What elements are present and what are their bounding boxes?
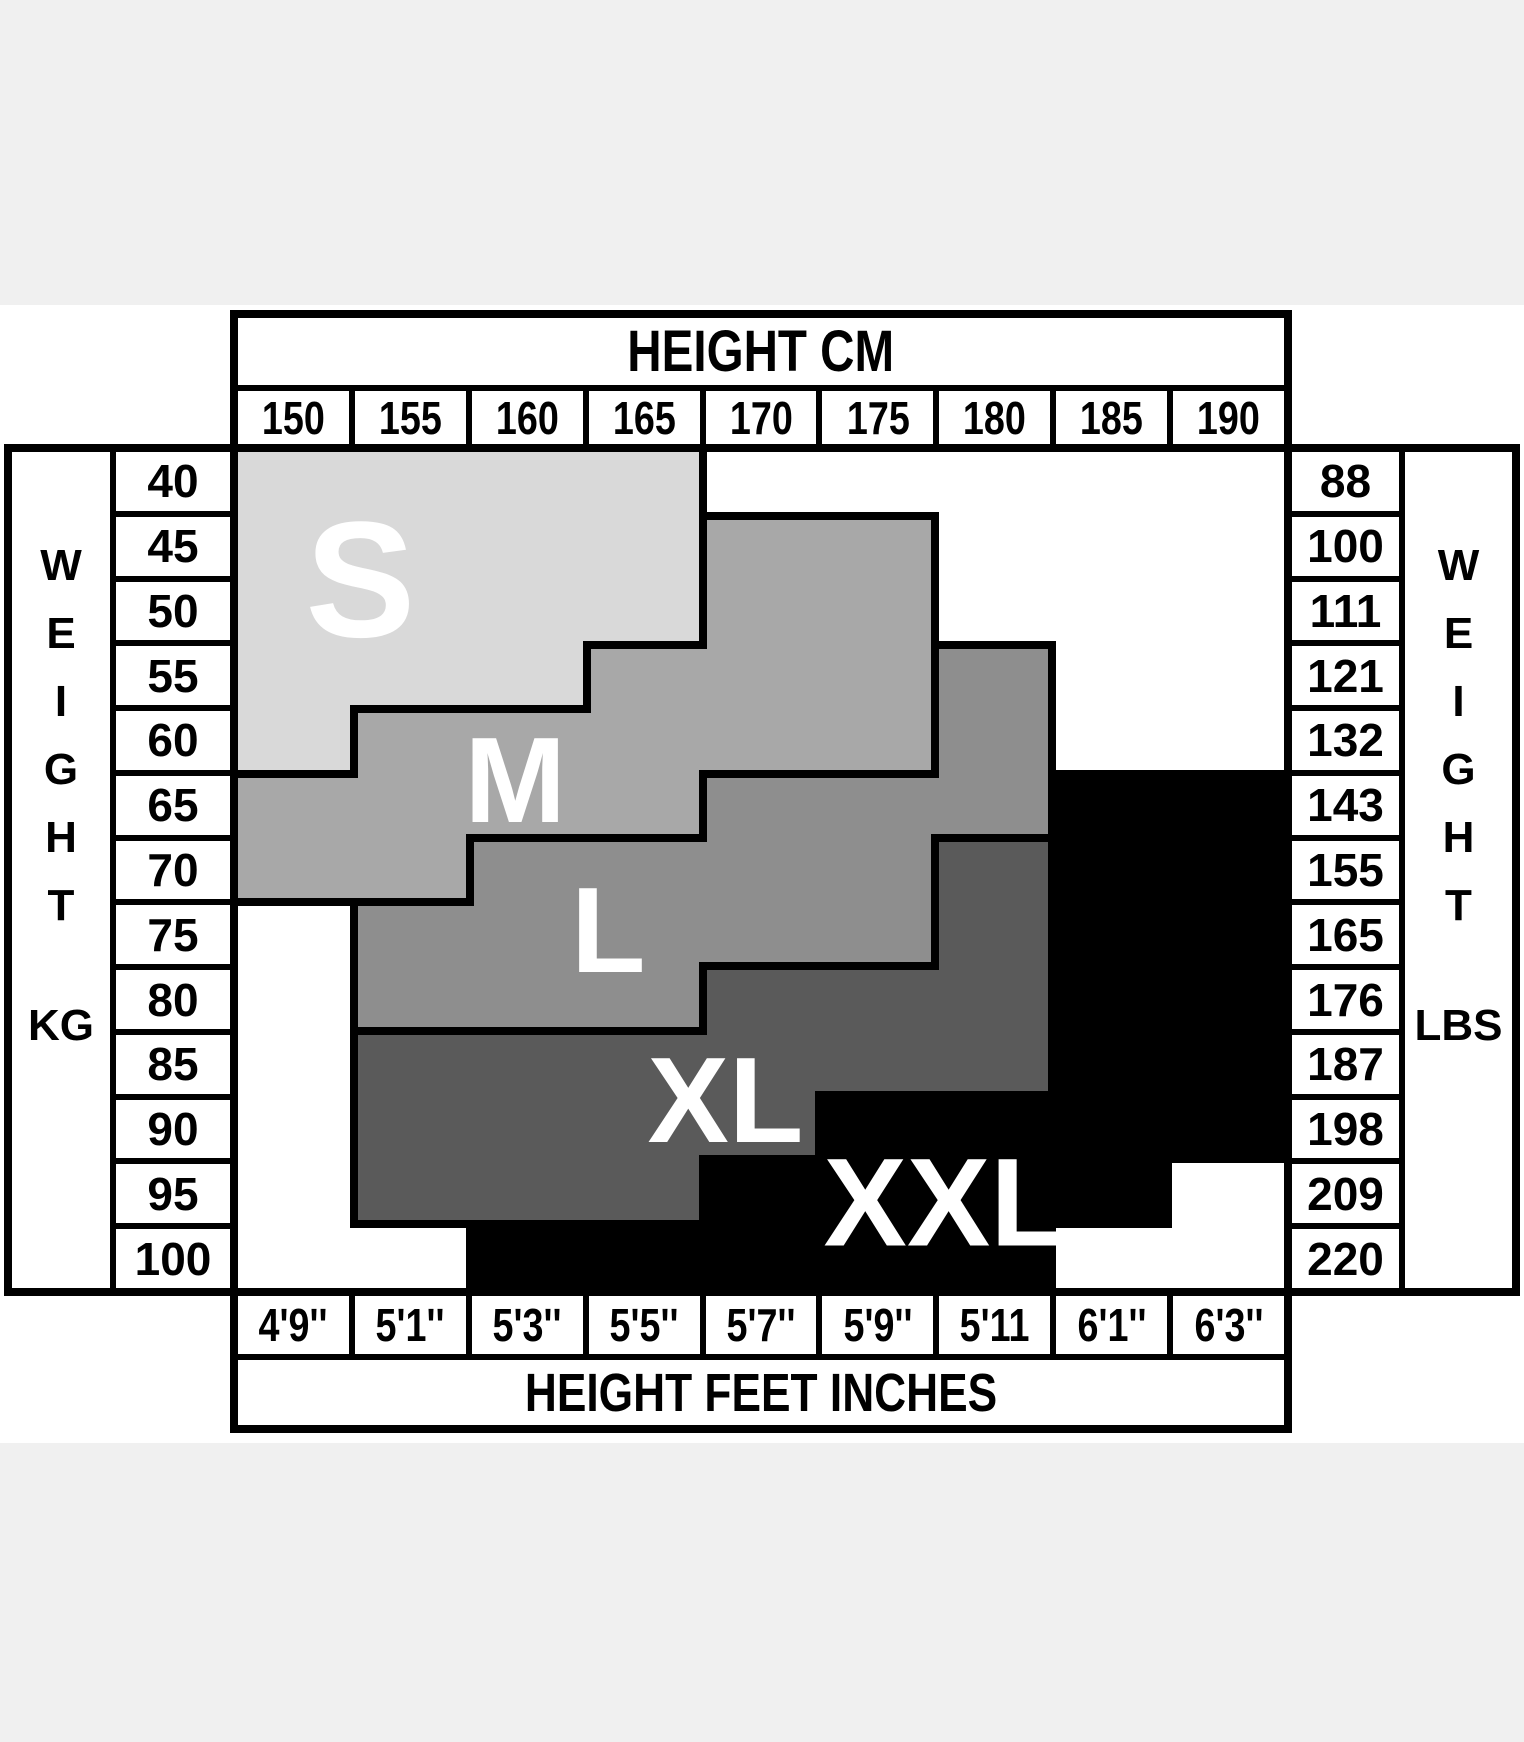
region-cell-M xyxy=(587,774,704,839)
height-ft-header: 4'9''5'1''5'3''5'5''5'7''5'9''5'116'1''6… xyxy=(230,1288,1292,1433)
region-cell-Z xyxy=(587,1224,704,1289)
region-border-v xyxy=(1164,1155,1172,1227)
region-cell-Z xyxy=(1168,966,1285,1031)
region-cell-S xyxy=(470,581,587,646)
region-border-h xyxy=(1164,770,1288,778)
region-border-h xyxy=(583,834,707,842)
weight-kg-tick: 45 xyxy=(116,511,230,576)
size-label-M: M xyxy=(464,719,566,841)
region-border-h xyxy=(234,770,358,778)
region-border-v xyxy=(931,577,939,649)
region-cell-X xyxy=(470,1031,587,1096)
region-border-v xyxy=(1048,770,1056,842)
region-cell-Z xyxy=(703,1224,820,1289)
region-border-v xyxy=(815,1091,823,1163)
height-ft-tick-text: 5'7'' xyxy=(727,1298,796,1352)
region-cell-L xyxy=(354,902,471,967)
height-ft-tick: 5'1'' xyxy=(349,1296,466,1354)
height-cm-title: HEIGHT CM xyxy=(238,318,1284,385)
weight-kg-panel: WEIGHTKG 404550556065707580859095100 xyxy=(4,444,238,1296)
region-border-v xyxy=(699,962,707,1034)
height-cm-tick: 165 xyxy=(583,391,700,445)
height-ft-tick: 5'7'' xyxy=(700,1296,817,1354)
region-border-v xyxy=(350,1091,358,1163)
height-ft-title-text: HEIGHT FEET INCHES xyxy=(525,1362,997,1424)
weight-lbs-tick: 132 xyxy=(1292,705,1399,770)
height-cm-tick-text: 175 xyxy=(846,391,909,445)
weight-lbs-tick: 143 xyxy=(1292,770,1399,835)
background-band-top xyxy=(0,0,1524,305)
region-border-v xyxy=(350,898,358,970)
size-grid: SMLXLXXL xyxy=(238,452,1284,1288)
weight-lbs-panel: 88100111121132143155165176187198209220 W… xyxy=(1284,444,1520,1296)
region-border-v xyxy=(931,512,939,584)
height-cm-tick: 180 xyxy=(933,391,1050,445)
region-border-v xyxy=(350,1155,358,1227)
region-cell-S xyxy=(238,709,355,774)
region-cell-Z xyxy=(1168,838,1285,903)
region-border-v xyxy=(350,962,358,1034)
height-ft-tick-text: 6'1'' xyxy=(1077,1298,1146,1352)
region-cell-Z xyxy=(703,1159,820,1224)
height-ft-tick: 6'3'' xyxy=(1167,1296,1284,1354)
region-cell-S xyxy=(470,452,587,517)
weight-letter: H xyxy=(1443,804,1475,872)
region-cell-M xyxy=(819,516,936,581)
region-border-h xyxy=(1164,1155,1288,1163)
region-border-v xyxy=(931,641,939,713)
region-cell-S xyxy=(587,581,704,646)
region-border-h xyxy=(466,1027,590,1035)
height-ft-tick: 5'9'' xyxy=(816,1296,933,1354)
region-border-v xyxy=(1048,1027,1056,1099)
region-border-h xyxy=(350,898,474,906)
height-cm-axis: 150155160165170175180185190 xyxy=(238,385,1284,445)
height-cm-tick: 150 xyxy=(238,391,349,445)
region-cell-M xyxy=(238,838,355,903)
region-cell-L xyxy=(703,902,820,967)
weight-letter: E xyxy=(46,600,75,668)
region-border-v xyxy=(1048,962,1056,1034)
weight-lbs-tick: 155 xyxy=(1292,835,1399,900)
size-label-XL: XL xyxy=(647,1039,803,1161)
weight-kg-axis: 404550556065707580859095100 xyxy=(116,452,230,1288)
region-border-v xyxy=(699,448,707,520)
weight-lbs-tick: 88 xyxy=(1292,452,1399,511)
region-border-h xyxy=(699,962,823,970)
height-cm-tick: 185 xyxy=(1050,391,1167,445)
weight-letter: T xyxy=(1445,872,1472,940)
weight-kg-tick: 60 xyxy=(116,705,230,770)
region-cell-Z xyxy=(1052,1159,1169,1224)
weight-lbs-tick: 100 xyxy=(1292,511,1399,576)
height-ft-tick-text: 6'3'' xyxy=(1194,1298,1263,1352)
weight-letter: W xyxy=(40,532,82,600)
height-cm-title-text: HEIGHT CM xyxy=(628,318,895,385)
weight-kg-tick: 85 xyxy=(116,1029,230,1094)
region-cell-M xyxy=(703,645,820,710)
height-ft-axis: 4'9''5'1''5'3''5'5''5'7''5'9''5'116'1''6… xyxy=(238,1296,1284,1354)
height-cm-tick-text: 150 xyxy=(262,391,325,445)
weight-letter: E xyxy=(1444,600,1473,668)
height-cm-tick-text: 190 xyxy=(1197,391,1260,445)
height-cm-tick: 160 xyxy=(466,391,583,445)
region-cell-X xyxy=(703,966,820,1031)
region-cell-L xyxy=(819,902,936,967)
region-border-h xyxy=(583,1220,707,1228)
height-ft-tick-text: 4'9'' xyxy=(259,1298,328,1352)
region-cell-L xyxy=(819,774,936,839)
region-border-v xyxy=(350,705,358,777)
region-border-v xyxy=(931,898,939,970)
weight-kg-tick: 65 xyxy=(116,770,230,835)
region-cell-Z xyxy=(470,1224,587,1289)
height-cm-tick-text: 170 xyxy=(730,391,793,445)
region-border-v xyxy=(699,577,707,649)
region-border-h xyxy=(815,512,939,520)
region-cell-Z xyxy=(1052,902,1169,967)
region-cell-M xyxy=(703,581,820,646)
region-cell-X xyxy=(935,1031,1052,1096)
region-border-h xyxy=(350,705,474,713)
region-cell-S xyxy=(470,645,587,710)
region-cell-Z xyxy=(1052,838,1169,903)
region-cell-M xyxy=(587,709,704,774)
height-cm-tick-text: 180 xyxy=(963,391,1026,445)
weight-lbs-tick: 198 xyxy=(1292,1094,1399,1159)
weight-kg-tick: 50 xyxy=(116,576,230,641)
size-grid-frame: SMLXLXXL xyxy=(230,444,1292,1296)
region-cell-X xyxy=(935,902,1052,967)
region-cell-M xyxy=(703,709,820,774)
region-border-v xyxy=(931,834,939,906)
region-cell-X xyxy=(470,1159,587,1224)
region-cell-X xyxy=(470,1095,587,1160)
weight-lbs-tick: 165 xyxy=(1292,899,1399,964)
region-cell-S xyxy=(587,452,704,517)
height-ft-tick: 5'11 xyxy=(933,1296,1050,1354)
region-border-h xyxy=(234,898,358,906)
height-ft-tick-text: 5'9'' xyxy=(843,1298,912,1352)
height-ft-tick: 4'9'' xyxy=(238,1296,349,1354)
weight-kg-tick: 40 xyxy=(116,452,230,511)
height-cm-tick: 155 xyxy=(349,391,466,445)
region-border-v xyxy=(583,641,591,713)
weight-unit: KG xyxy=(28,992,94,1060)
region-border-v xyxy=(350,1027,358,1099)
region-border-v xyxy=(699,770,707,842)
height-ft-tick-text: 5'5'' xyxy=(610,1298,679,1352)
height-cm-tick: 170 xyxy=(700,391,817,445)
region-cell-L xyxy=(703,838,820,903)
height-ft-title: HEIGHT FEET INCHES xyxy=(238,1354,1284,1425)
height-ft-tick: 6'1'' xyxy=(1050,1296,1167,1354)
region-border-v xyxy=(699,512,707,584)
region-cell-L xyxy=(354,966,471,1031)
height-ft-tick-text: 5'11 xyxy=(960,1298,1030,1352)
weight-lbs-tick: 220 xyxy=(1292,1223,1399,1288)
region-cell-Z xyxy=(1168,774,1285,839)
weight-letter: T xyxy=(48,872,75,940)
weight-lbs-tick: 176 xyxy=(1292,964,1399,1029)
weight-lbs-tick: 121 xyxy=(1292,640,1399,705)
size-chart-page: HEIGHT CM 150155160165170175180185190 WE… xyxy=(0,0,1524,1742)
region-cell-M xyxy=(703,516,820,581)
region-cell-M xyxy=(819,581,936,646)
region-border-h xyxy=(815,962,939,970)
region-border-h xyxy=(815,1091,939,1099)
region-border-h xyxy=(1048,770,1172,778)
region-border-v xyxy=(1048,898,1056,970)
region-cell-M xyxy=(587,645,704,710)
region-cell-X xyxy=(935,838,1052,903)
region-cell-Z xyxy=(1168,902,1285,967)
region-cell-L xyxy=(935,709,1052,774)
region-cell-X xyxy=(354,1159,471,1224)
height-cm-header: HEIGHT CM 150155160165170175180185190 xyxy=(230,310,1292,452)
region-border-v xyxy=(1048,641,1056,713)
region-border-h xyxy=(931,1091,1055,1099)
region-cell-X xyxy=(819,1031,936,1096)
weight-kg-tick: 90 xyxy=(116,1094,230,1159)
weight-kg-tick: 75 xyxy=(116,899,230,964)
weight-lbs-tick: 187 xyxy=(1292,1029,1399,1094)
background-band-bottom xyxy=(0,1443,1524,1742)
region-border-h xyxy=(699,512,823,520)
size-label-L: L xyxy=(571,869,646,991)
region-border-h xyxy=(583,641,707,649)
height-cm-tick-text: 160 xyxy=(496,391,559,445)
region-border-h xyxy=(931,834,1055,842)
height-cm-tick-text: 185 xyxy=(1080,391,1143,445)
region-cell-M xyxy=(354,774,471,839)
region-border-h xyxy=(815,770,939,778)
region-cell-Z xyxy=(1168,1095,1285,1160)
height-cm-tick-text: 155 xyxy=(379,391,442,445)
region-cell-M xyxy=(819,645,936,710)
region-border-h xyxy=(466,1220,590,1228)
weight-kg-tick: 80 xyxy=(116,964,230,1029)
weight-kg-tick: 70 xyxy=(116,835,230,900)
region-border-h xyxy=(350,1220,474,1228)
weight-letter: G xyxy=(44,736,78,804)
region-border-v xyxy=(1048,705,1056,777)
region-cell-X xyxy=(354,1095,471,1160)
weight-kg-tick: 95 xyxy=(116,1158,230,1223)
region-cell-M xyxy=(819,709,936,774)
weight-lbs-axis: 88100111121132143155165176187198209220 xyxy=(1292,452,1399,1288)
region-cell-Z xyxy=(1052,1031,1169,1096)
weight-kg-label: WEIGHTKG xyxy=(12,452,116,1288)
region-border-h xyxy=(699,770,823,778)
weight-kg-tick: 100 xyxy=(116,1223,230,1288)
weight-unit: LBS xyxy=(1415,992,1503,1060)
height-ft-tick-text: 5'1'' xyxy=(376,1298,445,1352)
region-cell-Z xyxy=(1052,774,1169,839)
region-cell-M xyxy=(354,838,471,903)
region-border-v xyxy=(466,1220,474,1292)
region-cell-L xyxy=(819,838,936,903)
weight-letter: G xyxy=(1441,736,1475,804)
region-cell-X xyxy=(587,1159,704,1224)
weight-lbs-tick: 111 xyxy=(1292,576,1399,641)
region-cell-S xyxy=(470,516,587,581)
weight-letter: H xyxy=(45,804,77,872)
weight-letter: W xyxy=(1438,532,1480,600)
weight-kg-tick: 55 xyxy=(116,640,230,705)
region-cell-X xyxy=(819,966,936,1031)
size-label-XXL: XXL xyxy=(824,1140,1067,1265)
region-cell-L xyxy=(935,774,1052,839)
weight-letter: I xyxy=(55,668,67,736)
region-cell-L xyxy=(703,774,820,839)
region-cell-X xyxy=(354,1031,471,1096)
region-border-h xyxy=(931,641,1055,649)
weight-letter: I xyxy=(1452,668,1464,736)
region-cell-L xyxy=(935,645,1052,710)
height-cm-tick: 175 xyxy=(816,391,933,445)
height-cm-tick: 190 xyxy=(1167,391,1284,445)
height-cm-tick-text: 165 xyxy=(613,391,676,445)
region-border-v xyxy=(1048,834,1056,906)
region-cell-X xyxy=(935,966,1052,1031)
weight-lbs-tick: 209 xyxy=(1292,1158,1399,1223)
region-cell-M xyxy=(354,709,471,774)
region-cell-Z xyxy=(1052,966,1169,1031)
region-border-v xyxy=(931,705,939,777)
region-cell-M xyxy=(238,774,355,839)
region-border-h xyxy=(350,1027,474,1035)
weight-lbs-label: WEIGHTLBS xyxy=(1399,452,1512,1288)
height-ft-tick: 5'3'' xyxy=(466,1296,583,1354)
region-cell-Z xyxy=(1168,1031,1285,1096)
size-label-S: S xyxy=(305,497,415,662)
height-ft-tick-text: 5'3'' xyxy=(493,1298,562,1352)
region-cell-Z xyxy=(1052,1095,1169,1160)
region-cell-S xyxy=(587,516,704,581)
height-ft-tick: 5'5'' xyxy=(583,1296,700,1354)
